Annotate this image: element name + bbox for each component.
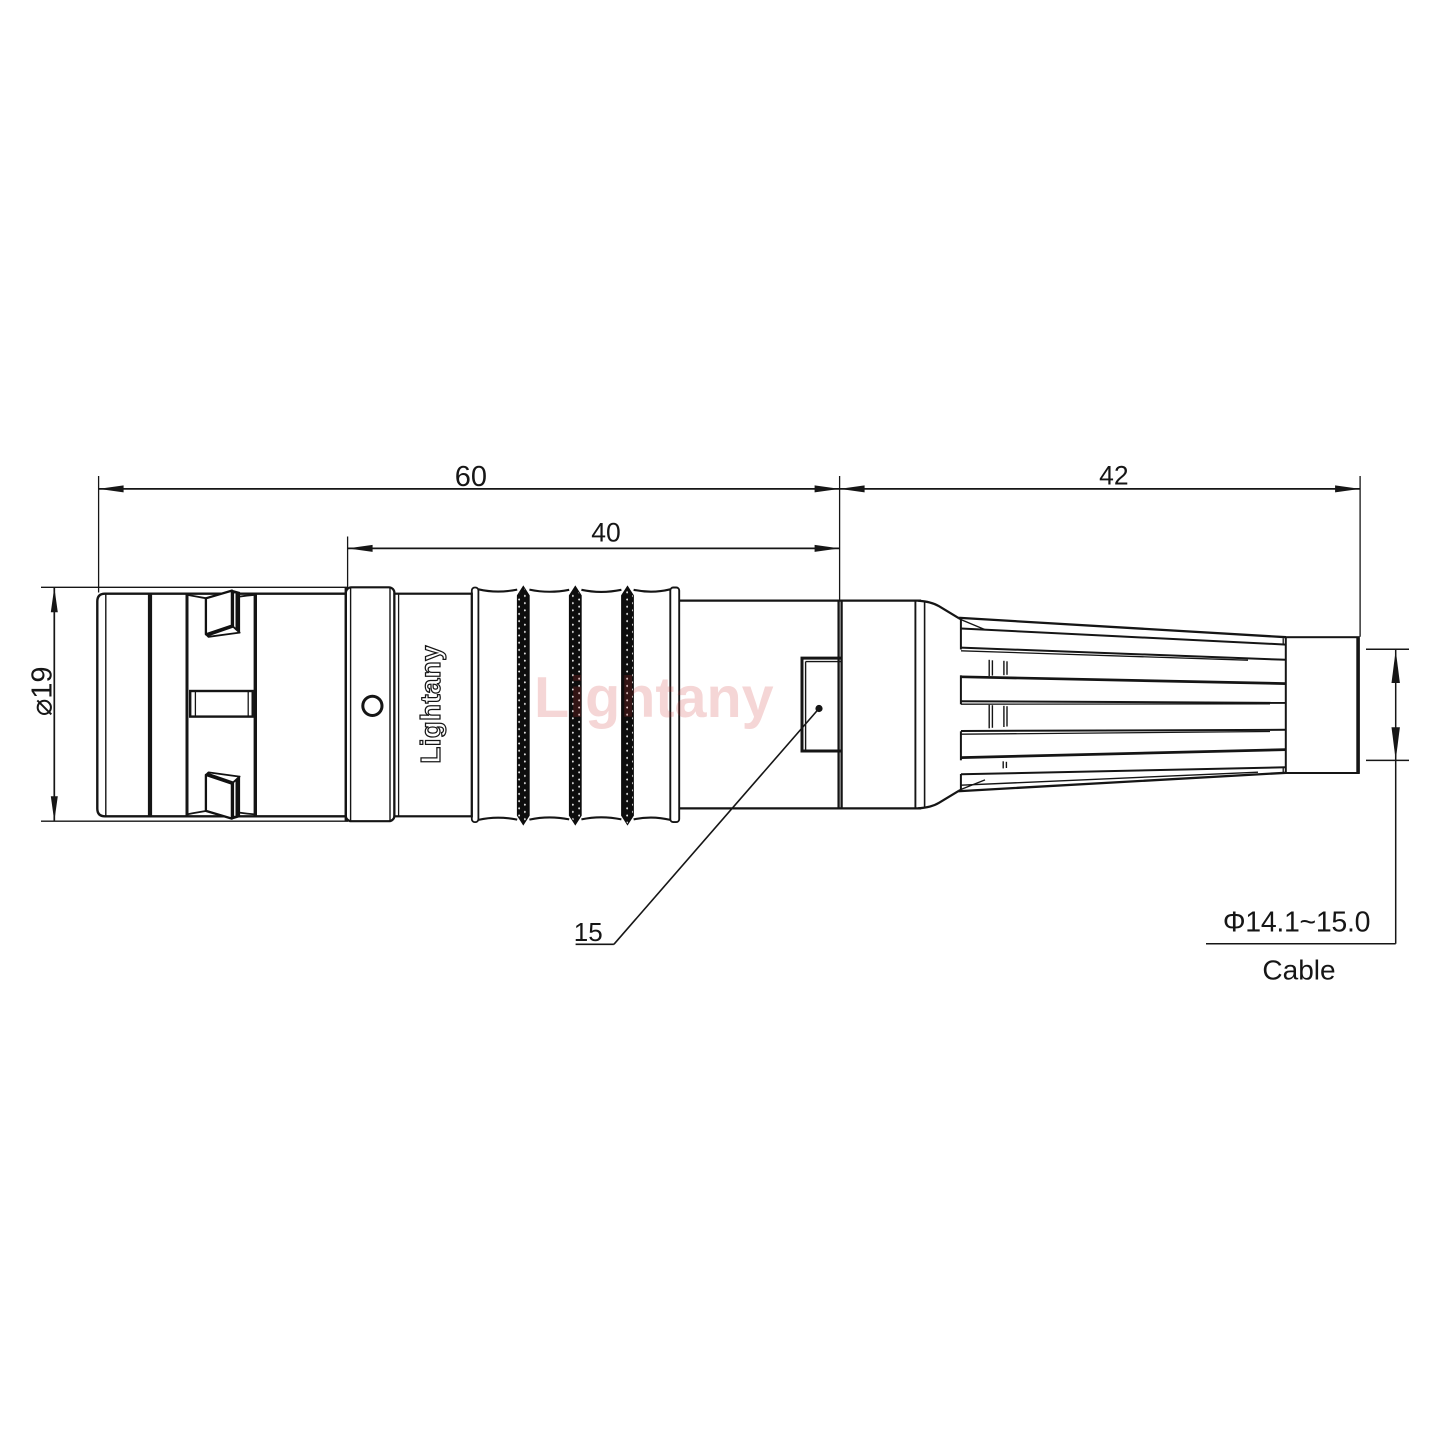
svg-text:60: 60 (455, 461, 487, 493)
svg-text:Lightany: Lightany (534, 666, 774, 730)
svg-text:Cable: Cable (1262, 955, 1335, 986)
svg-text:Lightany: Lightany (415, 645, 446, 764)
svg-text:Φ14.1~15.0: Φ14.1~15.0 (1223, 907, 1370, 939)
svg-text:42: 42 (1099, 461, 1128, 491)
svg-text:40: 40 (591, 518, 620, 548)
svg-text:⌀19: ⌀19 (27, 666, 59, 716)
svg-text:15: 15 (574, 917, 603, 947)
